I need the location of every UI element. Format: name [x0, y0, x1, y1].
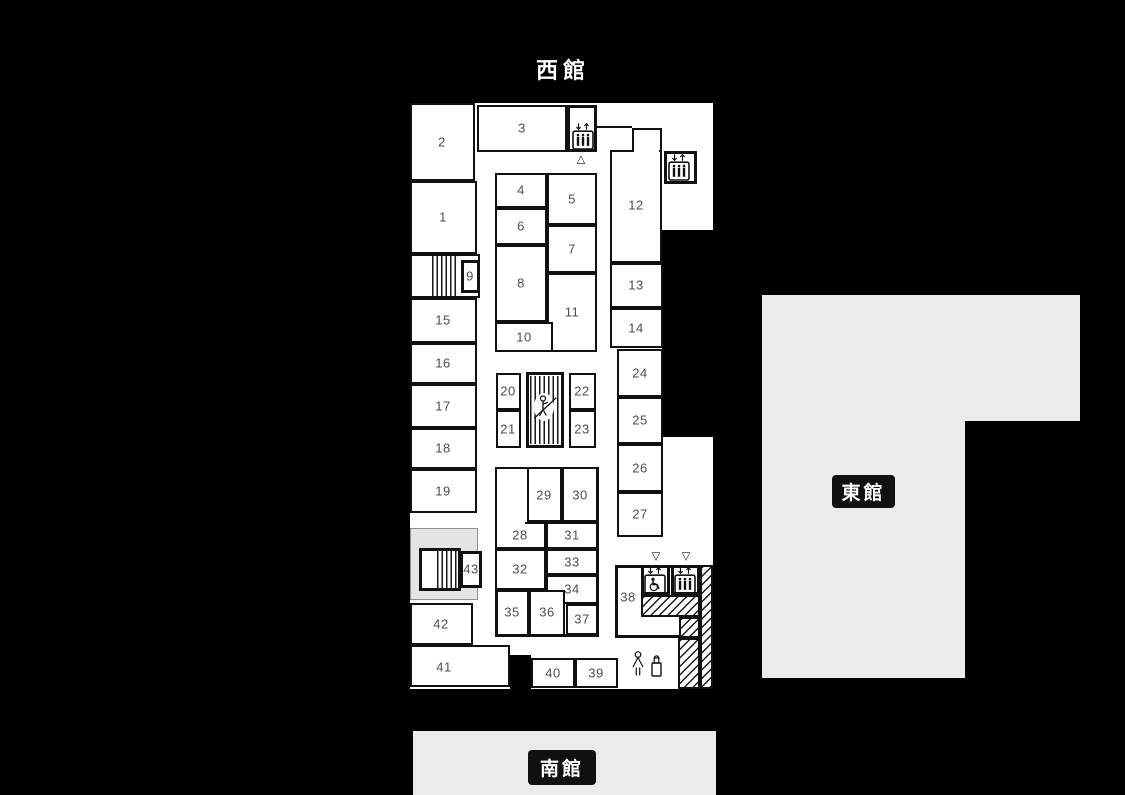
room-number-30: 30 [572, 488, 587, 503]
room-number-4: 4 [517, 183, 525, 198]
room-number-11: 11 [565, 305, 580, 320]
room-number-27: 27 [632, 507, 647, 522]
entrance-triangle-down: ▽ [652, 552, 660, 563]
entrance-triangle-up: △ [577, 155, 585, 166]
stairs-treads [437, 550, 459, 589]
room-number-23: 23 [574, 422, 589, 437]
room-number-34: 34 [564, 582, 579, 597]
room-number-21: 21 [500, 422, 515, 437]
room-number-40: 40 [545, 666, 560, 681]
south-building-badge: 南館 [528, 750, 596, 785]
floor-map: 西館 1234567891011121314151617181920212223… [0, 0, 1125, 795]
building-cutout [510, 655, 531, 689]
room-number-42: 42 [433, 617, 448, 632]
room-number-18: 18 [435, 441, 450, 456]
room-number-15: 15 [435, 313, 450, 328]
room-number-19: 19 [435, 484, 450, 499]
room-number-6: 6 [517, 219, 525, 234]
room-number-24: 24 [632, 366, 647, 381]
elevator-icon [572, 123, 594, 150]
room-number-7: 7 [568, 242, 576, 257]
wall-segment [595, 126, 632, 128]
room-number-35: 35 [504, 605, 519, 620]
room-number-32: 32 [512, 562, 527, 577]
west-building-title: 西館 [488, 54, 638, 88]
wall-opening-patch [497, 521, 525, 526]
hatched-area [641, 595, 700, 617]
room-number-9: 9 [466, 269, 474, 284]
room-number-13: 13 [628, 278, 643, 293]
room-number-5: 5 [568, 192, 576, 207]
room-number-41: 41 [436, 660, 451, 675]
hatched-area [678, 638, 700, 689]
room-number-25: 25 [632, 413, 647, 428]
hatched-area [679, 617, 700, 638]
room-number-16: 16 [435, 356, 450, 371]
room-number-3: 3 [518, 121, 526, 136]
wall-opening-patch [634, 149, 659, 154]
room-number-33: 33 [564, 555, 579, 570]
room-number-8: 8 [517, 276, 525, 291]
room-number-43: 43 [463, 562, 478, 577]
hatched-area [700, 565, 713, 689]
accessible-elevator-icon [644, 567, 666, 594]
room-number-17: 17 [435, 399, 450, 414]
room-number-12: 12 [628, 198, 643, 213]
room-number-26: 26 [632, 461, 647, 476]
building-cutout [662, 230, 713, 437]
room-number-29: 29 [536, 488, 551, 503]
stairs-treads [432, 256, 459, 296]
room-number-36: 36 [539, 605, 554, 620]
escalator-icon [533, 391, 557, 421]
room-number-28: 28 [512, 528, 527, 543]
room-number-20: 20 [500, 384, 515, 399]
east-building-badge: 東館 [832, 475, 895, 508]
room-number-2: 2 [438, 135, 446, 150]
entrance-triangle-down: ▽ [682, 552, 690, 563]
elevator-icon [668, 154, 690, 181]
elevator-icon [674, 567, 696, 594]
room-number-38: 38 [620, 590, 635, 605]
room-number-14: 14 [628, 321, 643, 336]
room-number-10: 10 [516, 330, 531, 345]
room-number-37: 37 [574, 612, 589, 627]
room-number-31: 31 [564, 528, 579, 543]
room-number-39: 39 [588, 666, 603, 681]
room-28-upper [495, 467, 529, 524]
room-number-1: 1 [439, 210, 447, 225]
room-number-22: 22 [574, 384, 589, 399]
fire-extinguisher-icon [649, 653, 664, 685]
person-icon [630, 650, 646, 684]
room-41 [410, 645, 510, 687]
